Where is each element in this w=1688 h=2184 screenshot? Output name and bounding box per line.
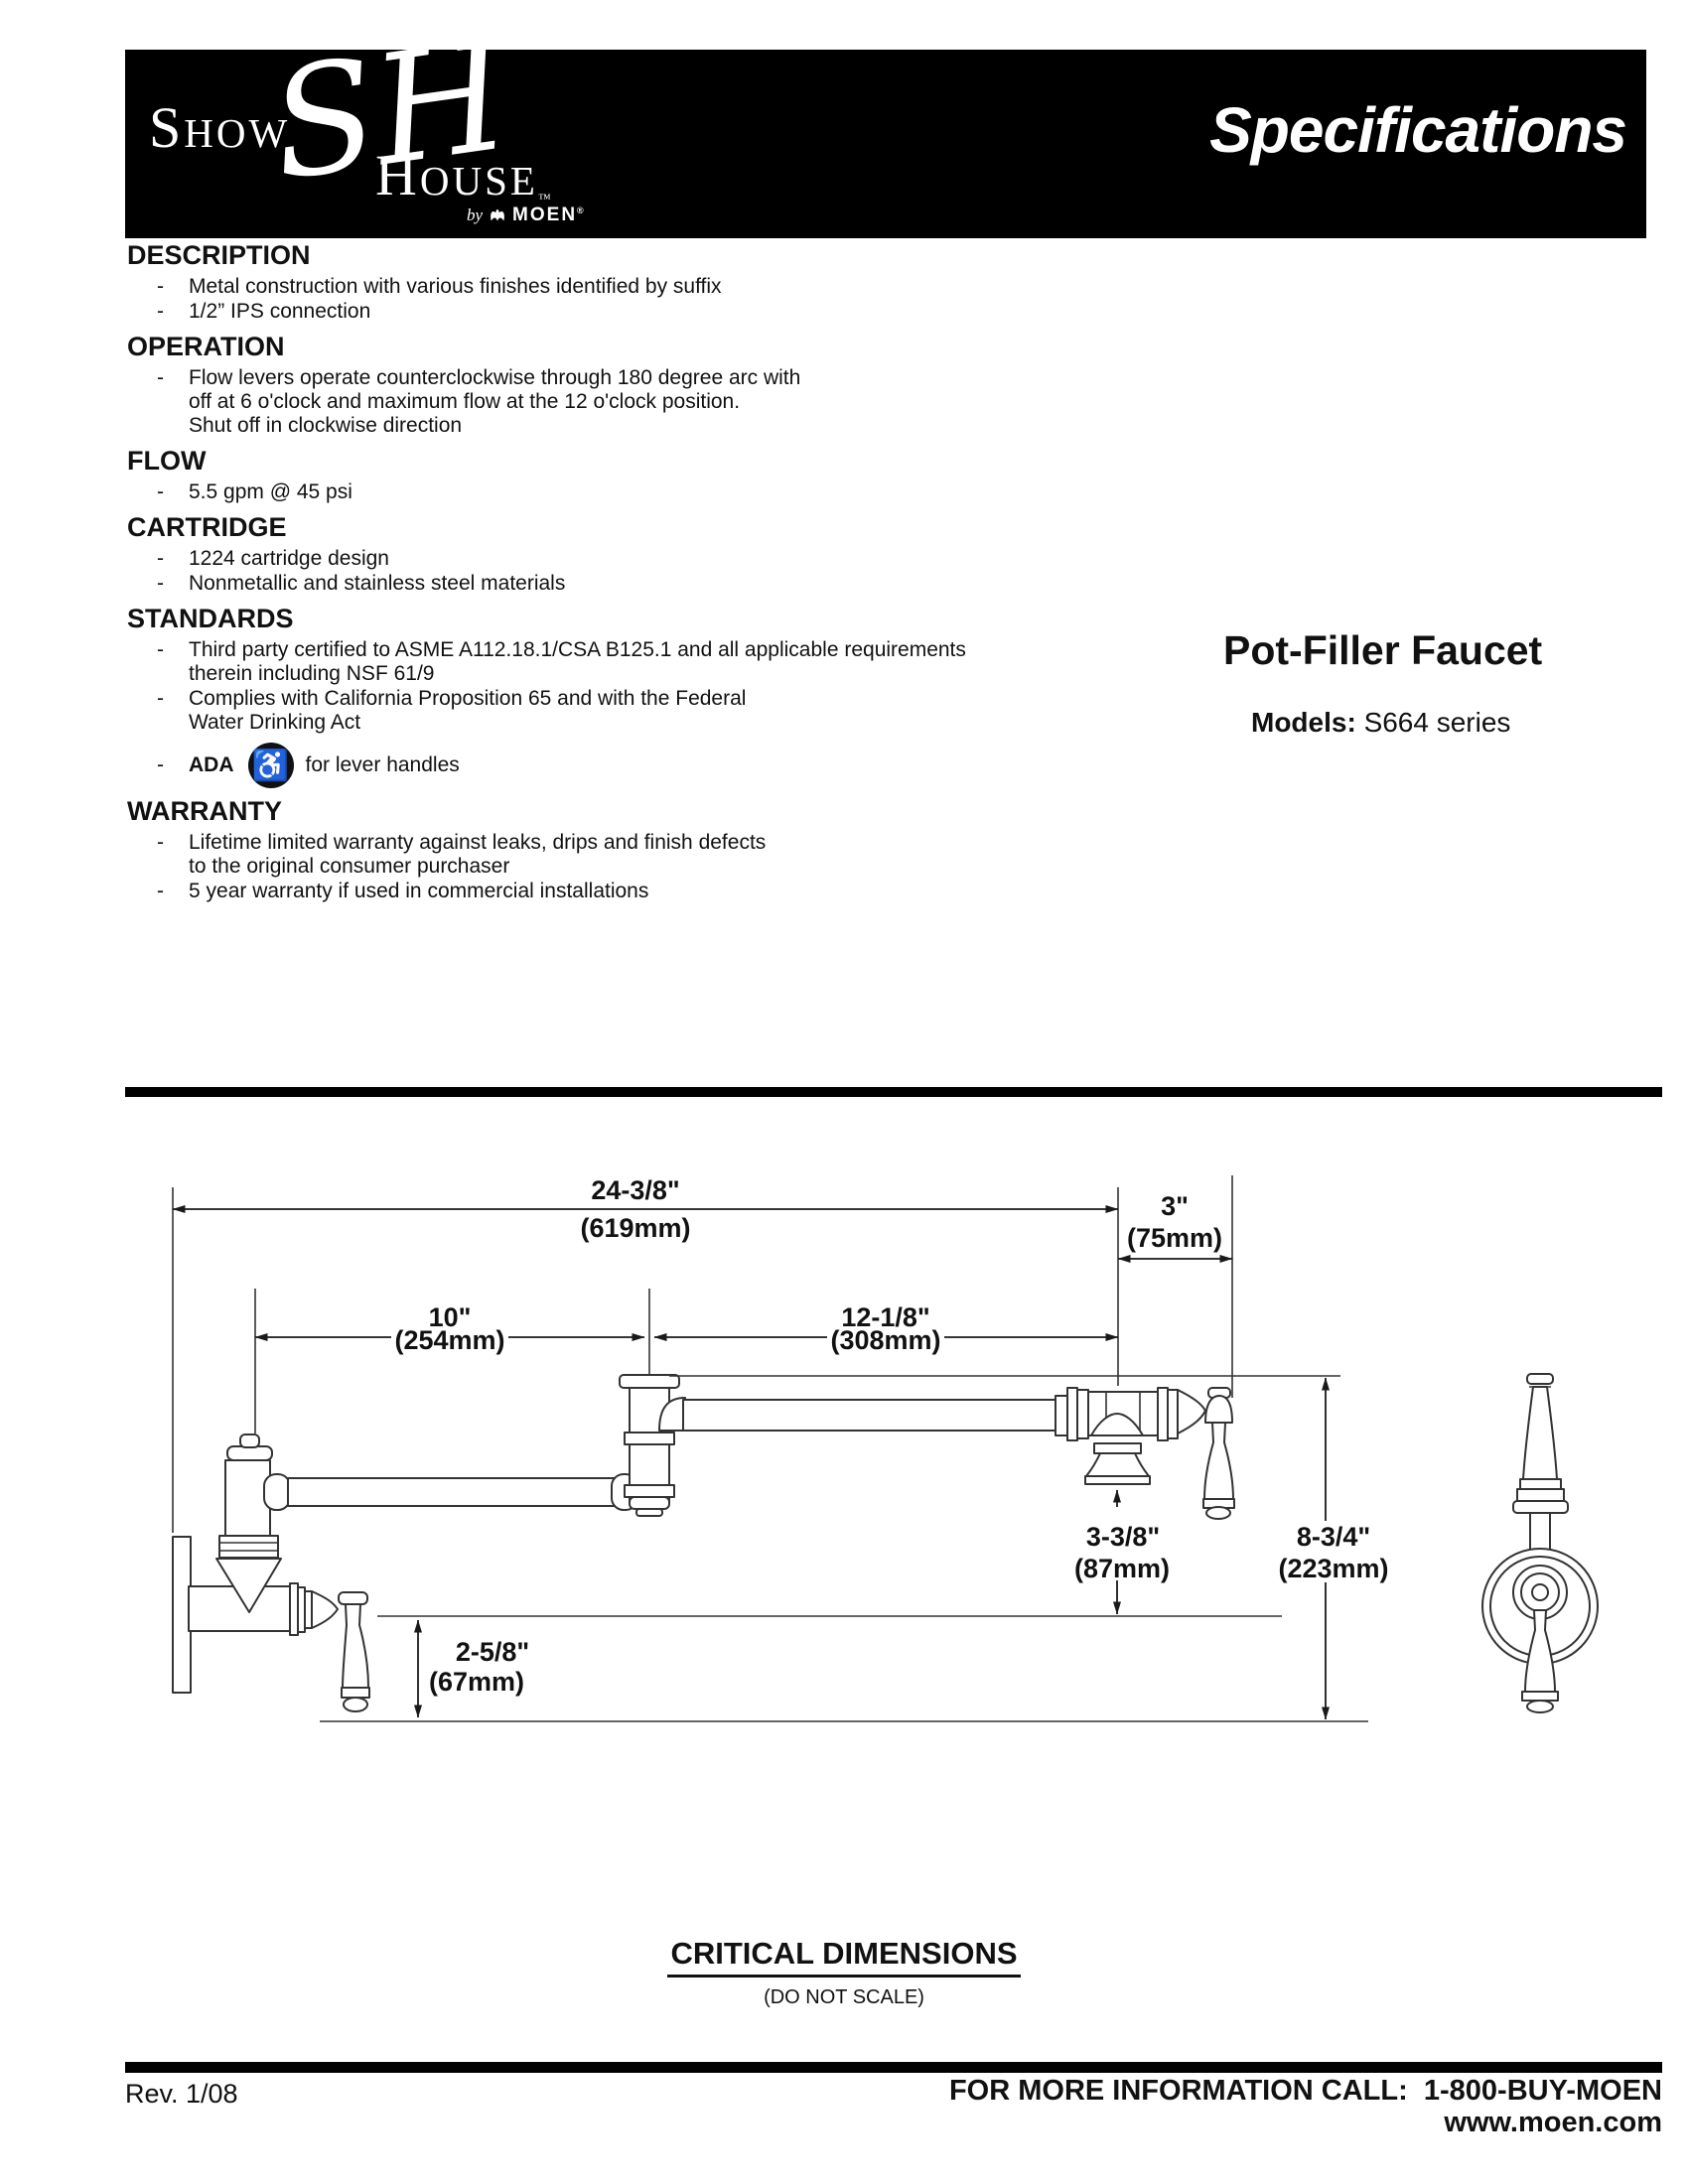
bullet-dash: - xyxy=(157,831,189,879)
logo-moen-word: MOEN® xyxy=(512,205,586,226)
revision-label: Rev. 1/08 xyxy=(125,2079,238,2110)
riser-finial xyxy=(240,1434,259,1447)
bullet-line: Shut off in clockwise direction xyxy=(189,414,800,438)
list-item: - 1224 cartridge design xyxy=(157,547,1100,571)
section-heading-operation: OPERATION xyxy=(127,334,1100,360)
bullet-line: 5 year warranty if used in commercial in… xyxy=(189,880,648,903)
list-item: - 5 year warranty if used in commercial … xyxy=(157,880,1100,903)
bullet-dash: - xyxy=(157,547,189,571)
footer-phone-line: FOR MORE INFORMATION CALL: 1-800-BUY-MOE… xyxy=(949,2075,1662,2107)
riser-cap xyxy=(227,1446,272,1460)
bullet-line: 5.5 gpm @ 45 psi xyxy=(189,480,352,504)
list-item: - Metal construction with various finish… xyxy=(157,275,1100,299)
product-title: Pot-Filler Faucet xyxy=(1223,627,1542,674)
arm2-tube xyxy=(683,1400,1055,1431)
front-lever-tip xyxy=(1527,1374,1553,1384)
section-heading-warranty: WARRANTY xyxy=(127,798,1100,825)
do-not-scale-note: (DO NOT SCALE) xyxy=(0,1986,1688,2009)
list-item: - Third party certified to ASME A112.18.… xyxy=(157,638,1100,686)
dim-clearance-mm: (87mm) xyxy=(1074,1554,1170,1583)
list-item: - Complies with California Proposition 6… xyxy=(157,687,1100,735)
arm1-tube xyxy=(288,1478,614,1506)
dim-reach-mm: (619mm) xyxy=(580,1213,690,1243)
dim-arm1-mm: (254mm) xyxy=(394,1325,504,1355)
bullet-dash: - xyxy=(157,880,189,903)
list-item: - Lifetime limited warranty against leak… xyxy=(157,831,1100,879)
logo-by-moen: by MOEN® xyxy=(467,205,586,226)
bullet-line: 1/2” IPS connection xyxy=(189,300,370,324)
header-bar: Show SH House™ by MOEN® Specifications xyxy=(125,50,1646,238)
bullet-line: Metal construction with various finishes… xyxy=(189,275,722,299)
bullet-line: Complies with California Proposition 65 … xyxy=(189,687,746,711)
product-models: Models: S664 series xyxy=(1251,707,1510,739)
joint-cap xyxy=(620,1375,679,1388)
section-heading-cartridge: CARTRIDGE xyxy=(127,514,1100,541)
dim-reach-in: 24-3/8" xyxy=(591,1175,679,1205)
logo-house-word: House xyxy=(375,143,538,207)
moen-flower-icon xyxy=(489,206,506,224)
left-lever-handle xyxy=(343,1604,368,1688)
spout-outlet xyxy=(1085,1476,1150,1484)
bullet-line: to the original consumer purchaser xyxy=(189,855,766,879)
spec-sheet-page: Show SH House™ by MOEN® Specifications D… xyxy=(0,0,1688,2184)
bullet-line: off at 6 o'clock and maximum flow at the… xyxy=(189,390,800,414)
ada-description: for lever handles xyxy=(306,753,460,777)
bullet-line: Nonmetallic and stainless steel material… xyxy=(189,572,565,596)
dim-drop-mm: (67mm) xyxy=(429,1667,524,1697)
dim-offset-in: 3" xyxy=(1161,1191,1189,1221)
showhouse-logo: Show SH House™ by MOEN® xyxy=(125,50,741,238)
registered-symbol: ® xyxy=(577,205,586,215)
dim-height-mm: (223mm) xyxy=(1278,1554,1388,1583)
dim-arm2-mm: (308mm) xyxy=(830,1325,940,1355)
bullet-line: therein including NSF 61/9 xyxy=(189,662,966,686)
bullet-line: Water Drinking Act xyxy=(189,711,746,735)
section-heading-description: DESCRIPTION xyxy=(127,242,1100,269)
right-lever-handle xyxy=(1204,1423,1233,1499)
critical-dimensions-title: CRITICAL DIMENSIONS xyxy=(667,1936,1020,1978)
bullet-dash: - xyxy=(157,687,189,735)
bullet-line: Flow levers operate counterclockwise thr… xyxy=(189,366,800,390)
footer-bar xyxy=(125,2062,1662,2073)
bullet-line: Lifetime limited warranty against leaks,… xyxy=(189,831,766,855)
riser-flange xyxy=(219,1536,278,1558)
right-handle-hub xyxy=(1205,1396,1232,1423)
faucet-side-view xyxy=(173,1375,1234,1711)
bullet-dash: - xyxy=(157,480,189,504)
footer-contact: FOR MORE INFORMATION CALL: 1-800-BUY-MOE… xyxy=(949,2075,1662,2138)
bonnet-bell xyxy=(312,1591,338,1628)
list-item: - Flow levers operate counterclockwise t… xyxy=(157,366,1100,438)
logo-house-text: House™ xyxy=(375,147,551,205)
ada-compliance-row: - ADA ♿ for lever handles xyxy=(157,743,1100,788)
footer-website: www.moen.com xyxy=(949,2107,1662,2138)
bullet-dash: - xyxy=(157,366,189,438)
arm1-left-knuckle xyxy=(264,1474,290,1510)
section-divider xyxy=(125,1087,1662,1097)
list-item: - 1/2” IPS connection xyxy=(157,300,1100,324)
spout-bell xyxy=(1086,1453,1149,1476)
spec-sections: DESCRIPTION - Metal construction with va… xyxy=(127,242,1100,904)
dim-height-in: 8-3/4" xyxy=(1297,1522,1370,1552)
logo-by-word: by xyxy=(467,205,483,225)
wheelchair-icon: ♿ xyxy=(248,743,294,788)
list-item: - Nonmetallic and stainless steel materi… xyxy=(157,572,1100,596)
models-label: Models: xyxy=(1251,707,1356,738)
dim-clearance-in: 3-3/8" xyxy=(1086,1522,1160,1552)
bullet-dash: - xyxy=(157,753,189,777)
bullet-dash: - xyxy=(157,300,189,324)
moen-text: MOEN xyxy=(512,205,577,225)
logo-show-text: Show xyxy=(149,99,290,157)
dim-drop-in: 2-5/8" xyxy=(456,1637,529,1667)
ada-label: ADA xyxy=(189,753,234,777)
section-heading-standards: STANDARDS xyxy=(127,606,1100,632)
bullet-line: 1224 cartridge design xyxy=(189,547,389,571)
bullet-line: Third party certified to ASME A112.18.1/… xyxy=(189,638,966,662)
bullet-dash: - xyxy=(157,572,189,596)
technical-drawing: 24-3/8" (619mm) 3" (75mm) 10" (254mm) 12… xyxy=(99,1132,1688,1767)
left-handle-hub xyxy=(339,1592,367,1604)
page-title: Specifications xyxy=(1209,93,1626,167)
section-heading-flow: FLOW xyxy=(127,448,1100,475)
list-item: - 5.5 gpm @ 45 psi xyxy=(157,480,1100,504)
trademark-symbol: ™ xyxy=(538,191,551,205)
drawing-caption: CRITICAL DIMENSIONS (DO NOT SCALE) xyxy=(0,1936,1688,2009)
faucet-front-view xyxy=(1482,1374,1598,1712)
dim-offset-mm: (75mm) xyxy=(1127,1223,1222,1253)
bullet-dash: - xyxy=(157,638,189,686)
front-upper-lever xyxy=(1523,1387,1557,1479)
bullet-dash: - xyxy=(157,275,189,299)
models-value: S664 series xyxy=(1364,707,1511,738)
